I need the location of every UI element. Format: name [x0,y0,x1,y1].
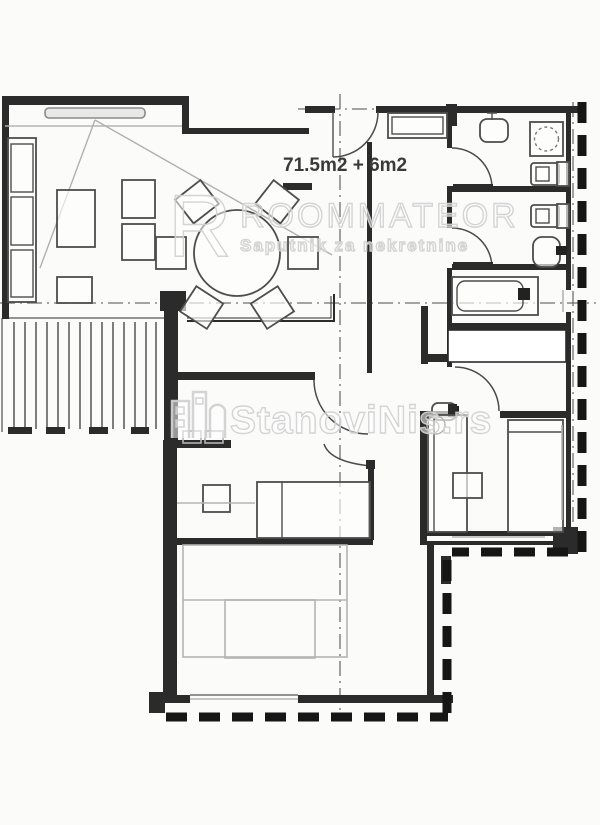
bed-sketch-inner [225,600,315,658]
terrace [2,318,164,434]
terrace-edge-marks [8,427,149,434]
floor-plan-svg: R ROOMMATEOR Saputnik za nekretnine Stan… [0,0,600,825]
tub-faucet [518,288,530,300]
armchair [122,180,155,218]
washing-machine [530,122,563,156]
bed-sketch [183,545,347,657]
nightstand [453,473,482,498]
wall-shaft-band [448,330,566,362]
ottoman [57,277,92,303]
door-arc [324,444,371,466]
buildings-icon [172,392,225,438]
watermark-subtitle: Saputnik za nekretnine [240,236,469,255]
bedroom-1 [177,482,370,538]
bed [508,420,563,532]
toilet [531,162,569,186]
sink [533,237,567,267]
hall-closet [388,113,447,138]
tv [45,108,145,118]
watermark-title: ROOMMATEOR [240,197,519,235]
bed [257,482,370,538]
master-bedroom [183,545,347,699]
toilet [531,204,569,228]
bathtub [452,277,538,315]
watermark-logo-letter: R [168,176,232,275]
bathroom-top [452,112,569,190]
door-threshold [453,262,493,268]
dining-chair [251,286,294,329]
sofa [8,138,36,302]
area-label: 71.5m2 + 6m2 [283,155,407,176]
floor-plan-image: R ROOMMATEOR Saputnik za nekretnine Stan… [0,0,600,825]
entry-hall [333,112,447,157]
nightstand [203,485,230,512]
terrace-decking [14,322,156,429]
door-threshold [453,184,493,190]
watermark-site-text: StanoviNis.rs [230,399,492,442]
door-leaf [366,460,375,469]
coffee-table [57,190,95,247]
sink [480,112,508,142]
faucet [556,246,567,255]
dining-chair [180,286,223,329]
armchair [122,224,155,260]
watermark-stanovinis: StanoviNis.rs [172,392,492,442]
door-arc [452,148,492,188]
